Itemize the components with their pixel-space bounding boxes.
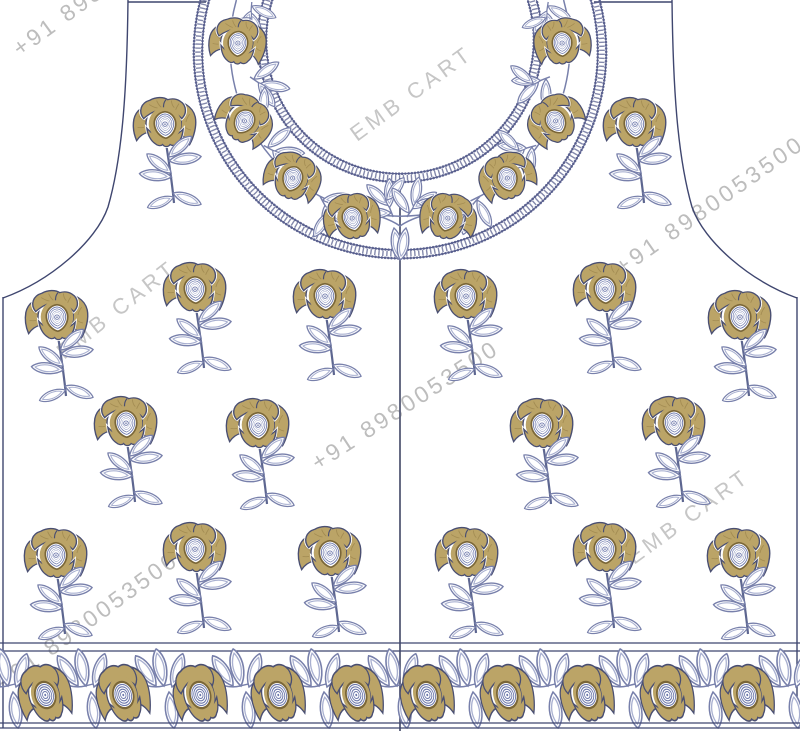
svg-text:EMB CART: EMB CART bbox=[345, 40, 477, 146]
svg-text:+91 8980053500: +91 8980053500 bbox=[8, 0, 200, 61]
svg-text:+91 8980053500: +91 8980053500 bbox=[307, 335, 504, 476]
